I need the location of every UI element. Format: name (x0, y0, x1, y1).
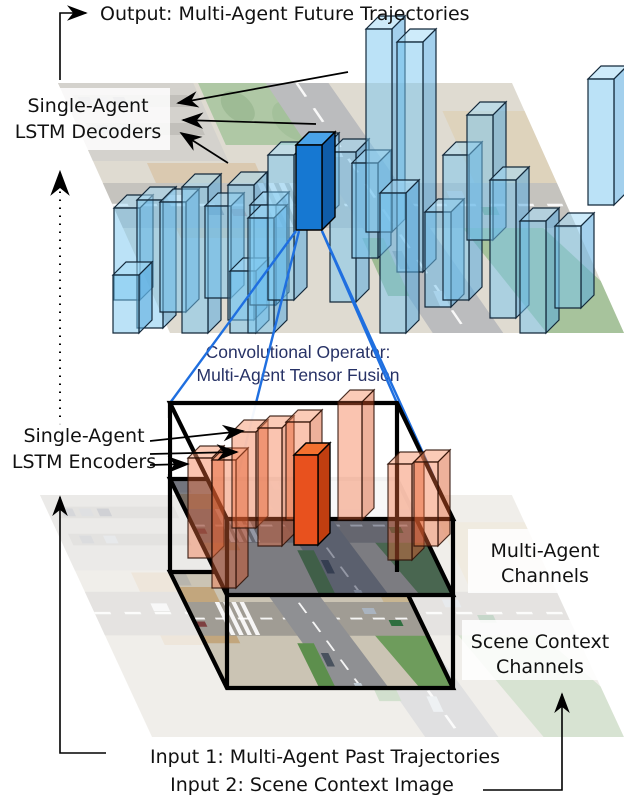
decoders-label-line1: Single-Agent (27, 95, 148, 117)
orange-box-front (414, 462, 438, 546)
blue-box-front (520, 221, 546, 333)
blue-box-side (614, 66, 624, 205)
orange-box-front (232, 432, 256, 528)
blue-box-front (467, 115, 493, 240)
output-connector (60, 13, 86, 80)
dark-blue-box-front (296, 145, 322, 230)
orange-box-front (338, 402, 362, 520)
blue-box-front (490, 180, 516, 318)
blue-box-side (139, 262, 152, 333)
blue-box-front (113, 275, 139, 333)
blue-box-front (205, 206, 231, 298)
selected-agent-encoding-box (294, 443, 330, 545)
blue-box-side (581, 213, 594, 308)
blue-box-front (555, 226, 581, 308)
dark-blue-box-side (322, 132, 335, 230)
output-title: Output: Multi-Agent Future Trajectories (100, 3, 470, 25)
orange-box-front (188, 458, 212, 558)
ma-channels-line2: Channels (501, 565, 589, 587)
sc-channels-line1: Scene Context (471, 631, 609, 653)
orange-box-front (388, 464, 412, 560)
orange-box-side (438, 450, 450, 546)
selected-agent-box (296, 132, 335, 230)
solid-orange-box-front (294, 455, 318, 545)
blue-box-front (380, 193, 406, 333)
conv-operator-line2: Multi-Agent Tensor Fusion (197, 365, 400, 385)
ma-channels-line1: Multi-Agent (490, 540, 599, 562)
input2-caption: Input 2: Scene Context Image (170, 774, 454, 796)
decoders-label-line2: LSTM Decoders (15, 121, 162, 143)
sc-channels-line2: Channels (496, 656, 584, 678)
blue-box-front (588, 79, 614, 205)
blue-box-front (443, 155, 469, 300)
input1-caption: Input 1: Multi-Agent Past Trajectories (150, 746, 500, 768)
encoders-label-line1: Single-Agent (23, 425, 144, 447)
blue-box-front (182, 187, 208, 333)
conv-operator-line1: Convolutional Operator: (206, 342, 391, 362)
blue-box-front (268, 155, 294, 300)
orange-box-front (258, 428, 282, 546)
solid-orange-box-side (318, 443, 330, 545)
encoder-arrow (150, 464, 188, 465)
blue-box-side (406, 180, 419, 333)
encoders-label-line2: LSTM Encoders (12, 451, 156, 473)
matf-architecture-figure: Single-Agent LSTM Decoders Output: Multi… (0, 0, 624, 798)
orange-box-side (362, 390, 374, 520)
